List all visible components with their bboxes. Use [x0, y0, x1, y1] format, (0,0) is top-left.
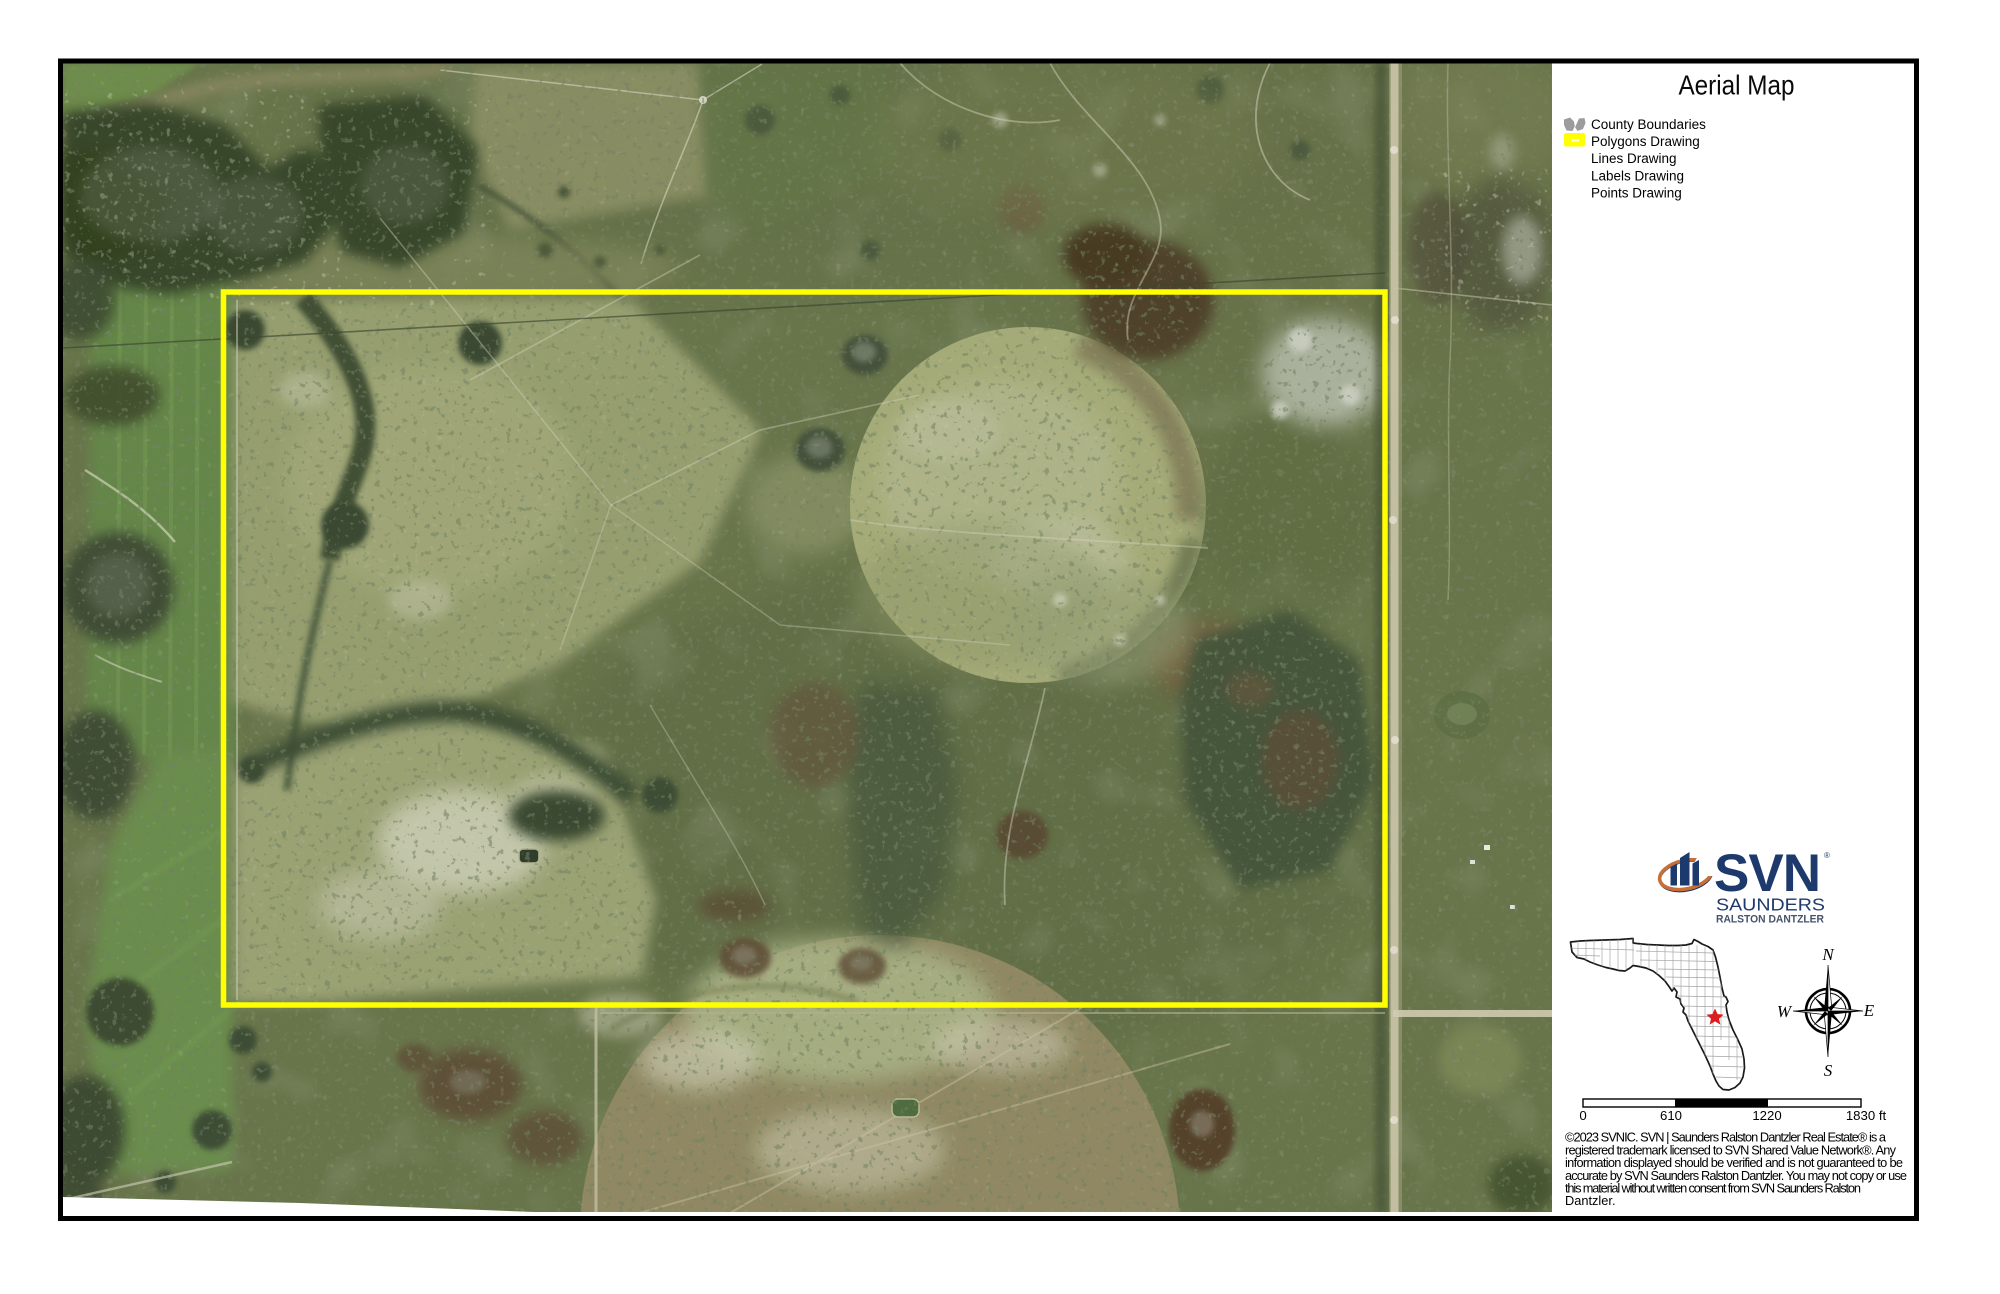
svg-text:1830 ft: 1830 ft — [1846, 1108, 1887, 1123]
svg-text:SAUNDERS: SAUNDERS — [1716, 895, 1825, 915]
svg-text:Labels Drawing: Labels Drawing — [1591, 168, 1684, 183]
svg-text:1220: 1220 — [1752, 1108, 1781, 1123]
svg-text:RALSTON DANTZLER: RALSTON DANTZLER — [1716, 914, 1824, 926]
svg-text:E: E — [1863, 1001, 1875, 1020]
svg-text:Aerial Map: Aerial Map — [1679, 70, 1795, 101]
svg-text:Lines Drawing: Lines Drawing — [1591, 151, 1677, 166]
svg-text:Dantzler.: Dantzler. — [1565, 1193, 1616, 1208]
svg-text:W: W — [1777, 1002, 1793, 1021]
svg-text:Points Drawing: Points Drawing — [1591, 186, 1682, 201]
svg-text:0: 0 — [1579, 1108, 1586, 1123]
svg-text:®: ® — [1824, 851, 1830, 860]
svg-text:610: 610 — [1660, 1108, 1682, 1123]
svg-text:County Boundaries: County Boundaries — [1591, 117, 1706, 132]
svg-text:N: N — [1821, 945, 1835, 964]
svg-text:S: S — [1824, 1061, 1833, 1080]
svg-text:Polygons Drawing: Polygons Drawing — [1591, 134, 1700, 149]
